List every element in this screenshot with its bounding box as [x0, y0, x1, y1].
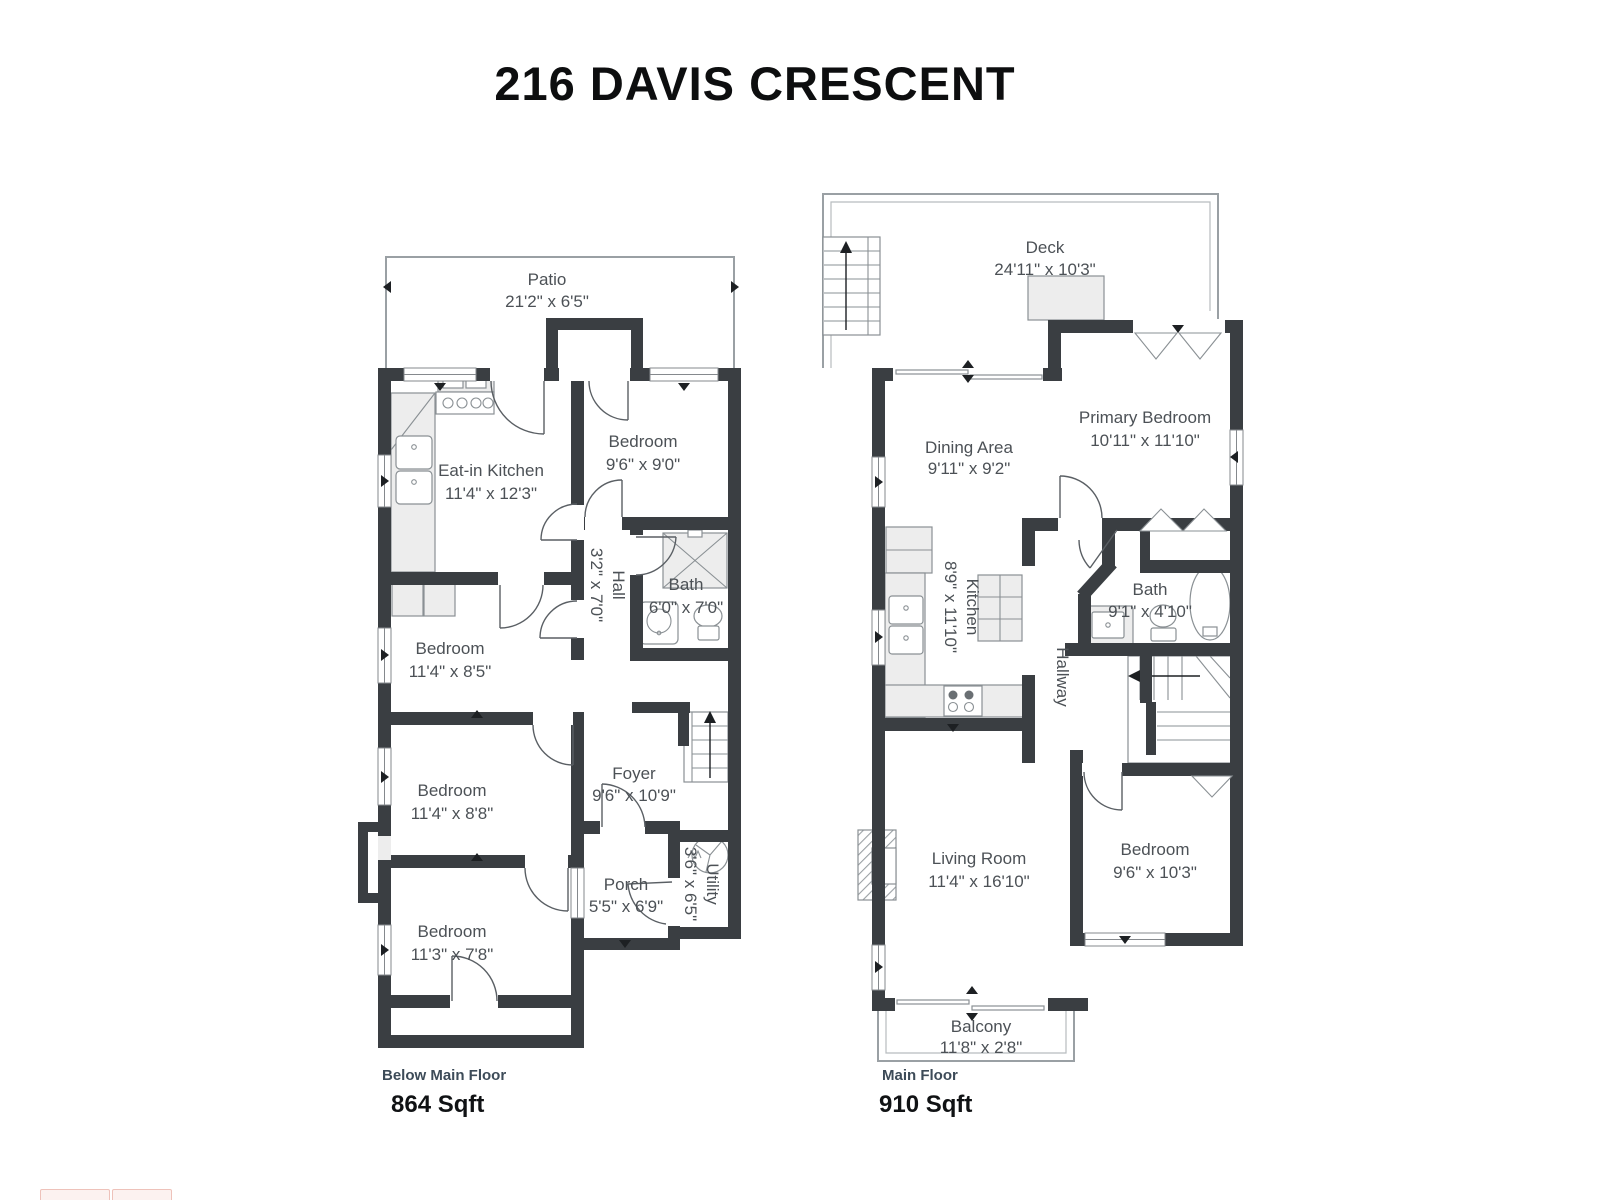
room-label-kitchen-main: Kitchen [963, 579, 982, 636]
room-dims-eat-in-kitchen: 11'4" x 12'3" [445, 484, 537, 503]
floor-sqft-main: 910 Sqft [879, 1091, 972, 1119]
room-dims-primary-bedroom: 10'11" x 11'10" [1090, 431, 1200, 450]
room-dims-dining-area: 9'11" x 9'2" [928, 459, 1011, 478]
cropped-element [40, 1189, 110, 1200]
room-label-foyer: Foyer [612, 764, 656, 783]
room-label-eat-in-kitchen: Eat-in Kitchen [438, 461, 544, 480]
room-dims-bath-lower: 6'0" x 7'0" [649, 598, 723, 617]
room-label-patio: Patio [528, 270, 567, 289]
room-label-bedroom-4: Bedroom [418, 922, 487, 941]
room-label-bedroom-2: Bedroom [416, 639, 485, 658]
room-dims-porch: 5'5" x 6'9" [589, 897, 663, 916]
room-dims-kitchen-main: 8'9" x 11'10" [941, 561, 960, 653]
room-dims-bedroom-3: 11'4" x 8'8" [411, 804, 494, 823]
room-label-balcony: Balcony [951, 1017, 1012, 1036]
room-label-utility: Utility [703, 863, 722, 905]
floor-name-main: Main Floor [882, 1067, 958, 1084]
room-dims-living-room: 11'4" x 16'10" [928, 872, 1029, 891]
room-dims-utility: 3'6" x 6'5" [681, 847, 700, 921]
room-label-hall: Hall [609, 570, 628, 599]
room-dims-bedroom-main: 9'6" x 10'3" [1113, 863, 1197, 882]
room-label-primary-bedroom: Primary Bedroom [1079, 408, 1211, 427]
room-dims-balcony: 11'8" x 2'8" [940, 1038, 1023, 1057]
room-label-bedroom-1: Bedroom [609, 432, 678, 451]
room-label-bedroom-main: Bedroom [1121, 840, 1190, 859]
floor-sqft-below-main: 864 Sqft [391, 1091, 484, 1119]
room-dims-patio: 21'2" x 6'5" [505, 292, 589, 311]
deck-stairs [823, 237, 880, 335]
room-dims-bath-main: 9'1" x 4'10" [1108, 602, 1192, 621]
bedroom-closet-boxes [392, 584, 455, 616]
room-label-hallway: Hallway [1053, 647, 1072, 707]
room-label-deck: Deck [1026, 238, 1065, 257]
room-label-bath-main: Bath [1133, 580, 1168, 599]
room-dims-bedroom-4: 11'3" x 7'8" [411, 945, 494, 964]
floorplan-canvas: Patio 21'2" x 6'5" Eat-in Kitchen 11'4" … [0, 0, 1600, 1200]
floorplan-page: 216 DAVIS CRESCENT [0, 0, 1600, 1200]
room-label-bedroom-3: Bedroom [418, 781, 487, 800]
foyer-stairs [684, 711, 728, 782]
room-dims-hall: 3'2" x 7'0" [587, 548, 606, 622]
room-label-dining-area: Dining Area [925, 438, 1013, 457]
floor-name-below-main: Below Main Floor [382, 1067, 506, 1084]
room-label-living-room: Living Room [932, 849, 1027, 868]
cropped-element [112, 1189, 172, 1200]
room-dims-deck: 24'11" x 10'3" [994, 260, 1095, 279]
room-dims-foyer: 9'6" x 10'9" [592, 786, 676, 805]
room-label-porch: Porch [604, 875, 648, 894]
room-label-bath-lower: Bath [669, 575, 704, 594]
deck-planter-box [1028, 276, 1104, 320]
room-dims-bedroom-1: 9'6" x 9'0" [606, 455, 680, 474]
room-dims-bedroom-2: 11'4" x 8'5" [409, 662, 492, 681]
